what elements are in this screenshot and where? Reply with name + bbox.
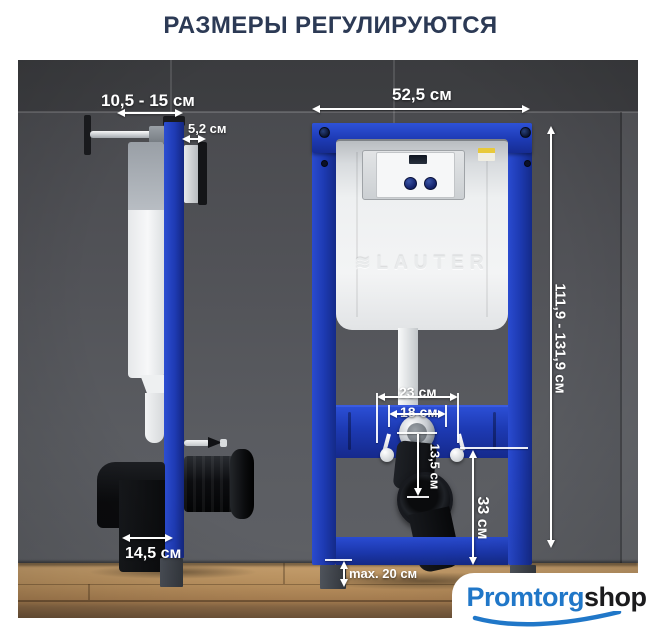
- dimension-label-frame-width: 52,5 см: [392, 85, 452, 105]
- floor-plank-seam: [283, 563, 285, 584]
- dimension-arrow-outlet-drop: [413, 434, 422, 496]
- shop-logo: Promtorgshop: [467, 584, 647, 611]
- shop-logo-secondary: shop: [584, 582, 647, 612]
- frame-rail-side: [164, 122, 184, 558]
- dimension-arrow-frame-width: [312, 104, 530, 113]
- shop-logo-primary: Promtorg: [467, 582, 585, 612]
- wall-tile-right-column: [622, 112, 638, 563]
- dimension-label-elbow-width: 14,5 см: [125, 545, 181, 563]
- cistern-seam: [486, 152, 488, 317]
- access-panel-window: [409, 155, 427, 164]
- dimension-tick: [460, 447, 528, 449]
- brand-emboss-text: LAUTER: [376, 253, 489, 274]
- dimension-label-frame-height: 111,9 - 131,9 см: [552, 259, 569, 419]
- dimension-arrow-fixing-outer: [377, 392, 458, 401]
- flush-port-left: [404, 177, 417, 190]
- dimension-tick: [445, 405, 447, 427]
- flush-port-right: [424, 177, 437, 190]
- product-photo: ≋LAUTER 10,5 - 15 см 5,2 см: [18, 60, 638, 618]
- dimension-arrow-leg-extension: [339, 561, 348, 587]
- drain-outlet-cap: [230, 449, 254, 519]
- dimension-tick: [407, 496, 429, 498]
- mounting-plate: [184, 145, 199, 203]
- logo-swoosh-icon: [467, 611, 647, 629]
- crossbar-slot: [348, 412, 351, 450]
- bolt-icon: [321, 160, 328, 167]
- mounting-bracket: [198, 142, 207, 205]
- dimension-arrow-elbow-width: [122, 533, 173, 542]
- stud-cap-left: [380, 448, 394, 462]
- frame-rail-left: [312, 123, 336, 565]
- floor-plank-seam: [88, 584, 90, 600]
- bolt-icon: [524, 160, 531, 167]
- cistern-side-top: [128, 142, 164, 212]
- dimension-tick: [388, 405, 390, 427]
- page-title: РАЗМЕРЫ РЕГУЛИРУЮТСЯ: [0, 12, 661, 40]
- cistern-side-body: [128, 210, 164, 378]
- frame-rail-right: [508, 123, 532, 565]
- brand-wave-icon: ≋: [355, 253, 371, 274]
- fixing-pin-cap: [220, 439, 227, 447]
- dimension-label-leg-extension: max. 20 см: [349, 566, 417, 581]
- drain-outlet-ribbed: [184, 456, 234, 512]
- bolt-icon: [319, 127, 330, 138]
- crossbar-slot: [493, 412, 496, 450]
- dimension-tick: [376, 393, 378, 443]
- dimension-arrow-fixing-inner: [389, 409, 446, 418]
- brand-emboss: ≋LAUTER: [336, 252, 508, 275]
- cistern-seam: [356, 152, 358, 317]
- dimension-tick: [457, 393, 459, 443]
- dimension-label-drain-height: 33 см: [473, 488, 491, 548]
- shop-watermark: Promtorgshop: [452, 573, 661, 640]
- fixing-pin: [184, 440, 210, 446]
- product-card: РАЗМЕРЫ РЕГУЛИРУЮТСЯ: [0, 0, 661, 640]
- bolt-icon: [520, 127, 531, 138]
- dimension-arrow-profile-depth: [182, 134, 206, 143]
- anchor-rod-clamp: [149, 126, 165, 143]
- dimension-arrow-wall-offset: [117, 108, 183, 117]
- dimension-label-outlet-drop: 13,5 см: [428, 432, 443, 502]
- stud-cap-right: [450, 448, 464, 462]
- warning-sticker: [478, 148, 495, 161]
- flush-pipe-side: [145, 393, 164, 443]
